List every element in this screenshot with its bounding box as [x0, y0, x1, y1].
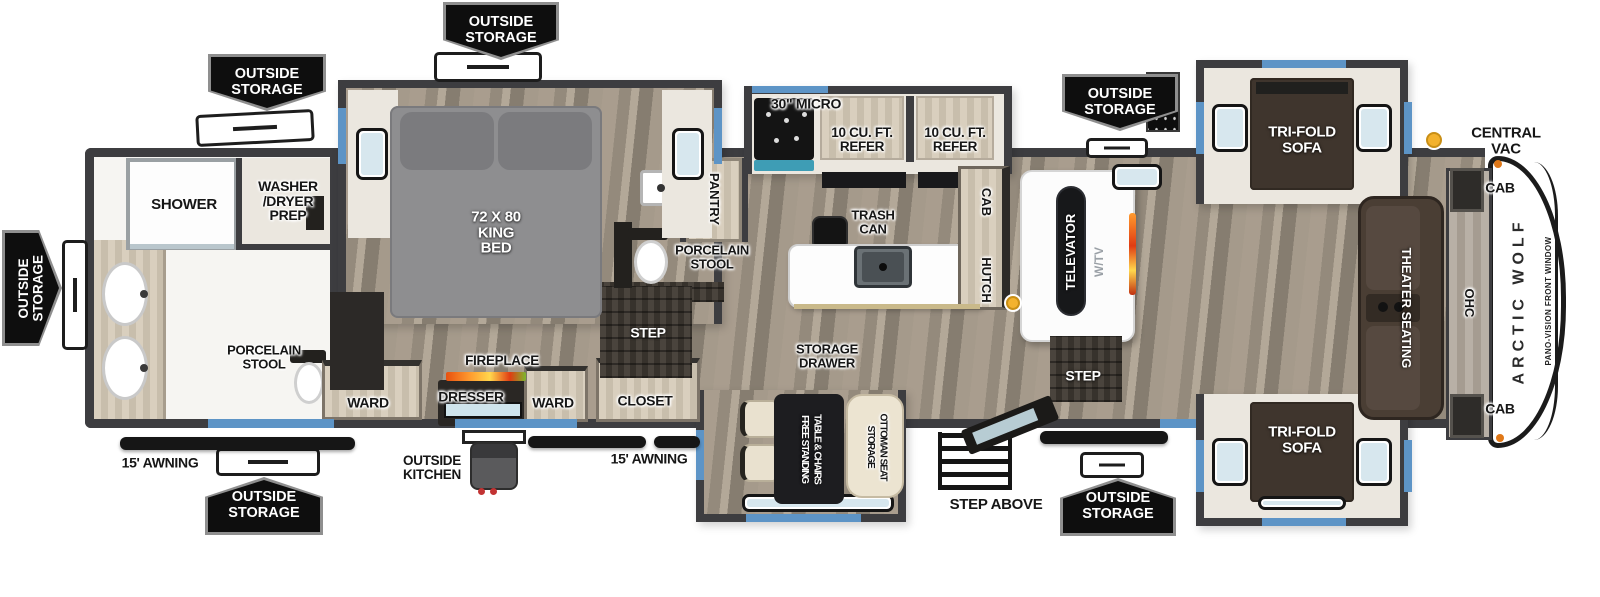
storage-door	[1086, 138, 1148, 158]
porcelain-stool-label: PORCELAIN STOOL	[675, 243, 749, 270]
faucet	[140, 364, 148, 372]
cab-label: CAB	[1485, 402, 1514, 417]
wtv-label: W/TV	[1093, 247, 1105, 277]
storage-drawer-label: STORAGE DRAWER	[796, 342, 858, 369]
outside-kitchen-label: OUTSIDE KITCHEN	[403, 454, 461, 482]
handle-dash	[1099, 464, 1125, 467]
handle-dash	[73, 278, 77, 312]
refer-label: 10 CU. FT. REFER	[831, 126, 893, 154]
awning-label: 15' AWNING	[611, 452, 688, 467]
dinette-chair	[740, 400, 776, 438]
step-label: STEP	[1065, 369, 1100, 384]
handle-dash	[233, 125, 277, 131]
window-glass	[1217, 109, 1243, 147]
refer-divider	[906, 96, 914, 162]
televator-label: TELEVATOR	[1064, 214, 1078, 291]
window-glass	[1263, 501, 1341, 505]
banner-label: OUTSIDE STORAGE	[17, 255, 46, 322]
pillow	[498, 112, 592, 170]
handle-dash	[1104, 147, 1130, 150]
closet-label: CLOSET	[618, 394, 673, 409]
ward-label: WARD	[532, 396, 574, 411]
toilet-bowl	[634, 240, 668, 284]
trash-can-label: TRASH CAN	[851, 208, 894, 235]
sofa-slide-window	[1212, 104, 1248, 152]
dresser-label: DRESSER	[438, 390, 504, 405]
tri-fold-sofa-label: TRI-FOLD SOFA	[1268, 124, 1336, 155]
bedroom-window	[356, 128, 388, 180]
kitchen-counter	[822, 172, 906, 188]
island-edge	[794, 304, 980, 309]
banner-label: OUTSIDE STORAGE	[1082, 491, 1153, 522]
ohc-label: OHC	[1462, 289, 1476, 318]
handle-dash	[467, 65, 509, 69]
window-glass	[1217, 443, 1243, 481]
porcelain-stool-label: PORCELAIN STOOL	[227, 343, 301, 370]
kitchen-wall	[742, 158, 748, 242]
marker-light	[1496, 434, 1504, 442]
sofa-slide-window	[1212, 438, 1248, 486]
sofa-slide-window	[1356, 104, 1392, 152]
tri-fold-sofa-label: TRI-FOLD SOFA	[1268, 424, 1336, 455]
fireplace-label: FIREPLACE	[465, 354, 539, 368]
wall-accent	[208, 419, 334, 428]
hutch-label: HUTCH	[979, 257, 993, 303]
outside-storage-banner: OUTSIDE STORAGE	[2, 230, 62, 346]
awning-rail	[654, 436, 700, 448]
cab-label: CAB	[979, 188, 993, 216]
central-vac-inlet-dot	[1006, 296, 1020, 310]
outside-storage-banner: OUTSIDE STORAGE	[208, 54, 326, 111]
banner-label: OUTSIDE STORAGE	[465, 15, 536, 46]
ward-label: WARD	[347, 396, 389, 411]
banner-label: OUTSIDE STORAGE	[1084, 87, 1155, 118]
cab-label: CAB	[1485, 181, 1514, 196]
window-glass	[1361, 109, 1387, 147]
fireplace-insert	[446, 372, 526, 381]
sink-drain	[879, 263, 887, 271]
dinette-chair	[740, 444, 776, 482]
slide-accent	[752, 86, 828, 93]
slide-accent	[714, 108, 722, 164]
sofa-slide-window	[1356, 438, 1392, 486]
storage-door	[434, 52, 542, 82]
micro-label: 30" MICRO	[771, 97, 841, 112]
slide-accent	[746, 514, 861, 522]
window-glass	[1361, 443, 1387, 481]
island-fireplace-strip	[1129, 213, 1136, 295]
slide-accent	[1404, 102, 1412, 154]
central-vac-label: CENTRAL VAC	[1459, 125, 1553, 156]
outside-storage-banner: OUTSIDE STORAGE	[1060, 478, 1176, 536]
pantry-label: PANTRY	[707, 173, 721, 225]
awning-rail	[120, 437, 355, 450]
brand-label: ARCTIC WOLF	[1512, 218, 1529, 385]
outside-kitchen-grill	[470, 442, 518, 490]
handle-dash	[248, 460, 288, 464]
slide-accent	[1196, 440, 1204, 492]
pillow	[400, 112, 494, 170]
nightstand	[330, 292, 384, 390]
storage-ottoman-label: STORAGE OTTOMAN SEAT	[864, 413, 889, 480]
storage-door	[62, 240, 88, 350]
step-above-label: STEP ABOVE	[950, 497, 1043, 513]
cab-unit	[1450, 394, 1484, 438]
step-label: STEP	[630, 326, 665, 341]
banner-label: OUTSIDE STORAGE	[228, 490, 299, 521]
awning-label: 15' AWNING	[122, 456, 199, 471]
bath-wall	[236, 158, 242, 250]
awning-rail	[528, 436, 646, 448]
burner	[766, 112, 771, 117]
slide-accent	[1262, 518, 1346, 526]
storage-door	[195, 109, 315, 147]
sofa-table-strip	[1256, 82, 1348, 94]
window-glass	[677, 133, 699, 175]
wall-accent	[1160, 419, 1196, 428]
slide-accent	[1196, 102, 1204, 154]
marker-light	[1494, 160, 1502, 168]
king-bed-label: 72 X 80 KING BED	[471, 210, 521, 257]
entry-transom-window	[1112, 164, 1162, 190]
cab-unit	[1450, 168, 1484, 212]
bedroom-window	[672, 128, 704, 180]
sofa-slide-skylight	[1258, 496, 1346, 510]
banner-label: OUTSIDE STORAGE	[231, 67, 302, 98]
bath-bedroom-wall	[330, 150, 338, 310]
storage-door	[1080, 452, 1144, 478]
free-standing-table-label: FREE STANDING TABLE & CHAIRS	[798, 414, 823, 484]
shower-glass	[130, 244, 234, 249]
window-glass	[361, 133, 383, 175]
cupholder	[1378, 302, 1388, 312]
shower-label: SHOWER	[151, 197, 217, 213]
refer-label: 10 CU. FT. REFER	[924, 126, 986, 154]
wall-accent	[455, 419, 577, 428]
outside-storage-banner: OUTSIDE STORAGE	[205, 477, 323, 535]
grill-knob	[478, 488, 485, 495]
slide-accent	[1262, 60, 1346, 68]
floorplan-canvas: OUTSIDE STORAGE OUTSIDE STORAGE OUTSIDE …	[0, 0, 1600, 597]
faucet	[657, 184, 665, 192]
theater-seating-label: THEATER SEATING	[1399, 248, 1413, 369]
pano-vision-label: PANO-VISION FRONT WINDOW	[1545, 237, 1553, 366]
central-vac-legend-dot	[1426, 132, 1442, 148]
window-glass	[1117, 169, 1157, 185]
faucet	[140, 290, 148, 298]
slide-accent	[338, 108, 346, 164]
slide-accent	[1404, 440, 1412, 492]
oven-front	[754, 160, 814, 171]
awning-rail	[1040, 431, 1168, 444]
washer-dryer-label: WASHER /DRYER PREP	[258, 179, 318, 223]
storage-door	[216, 448, 320, 476]
